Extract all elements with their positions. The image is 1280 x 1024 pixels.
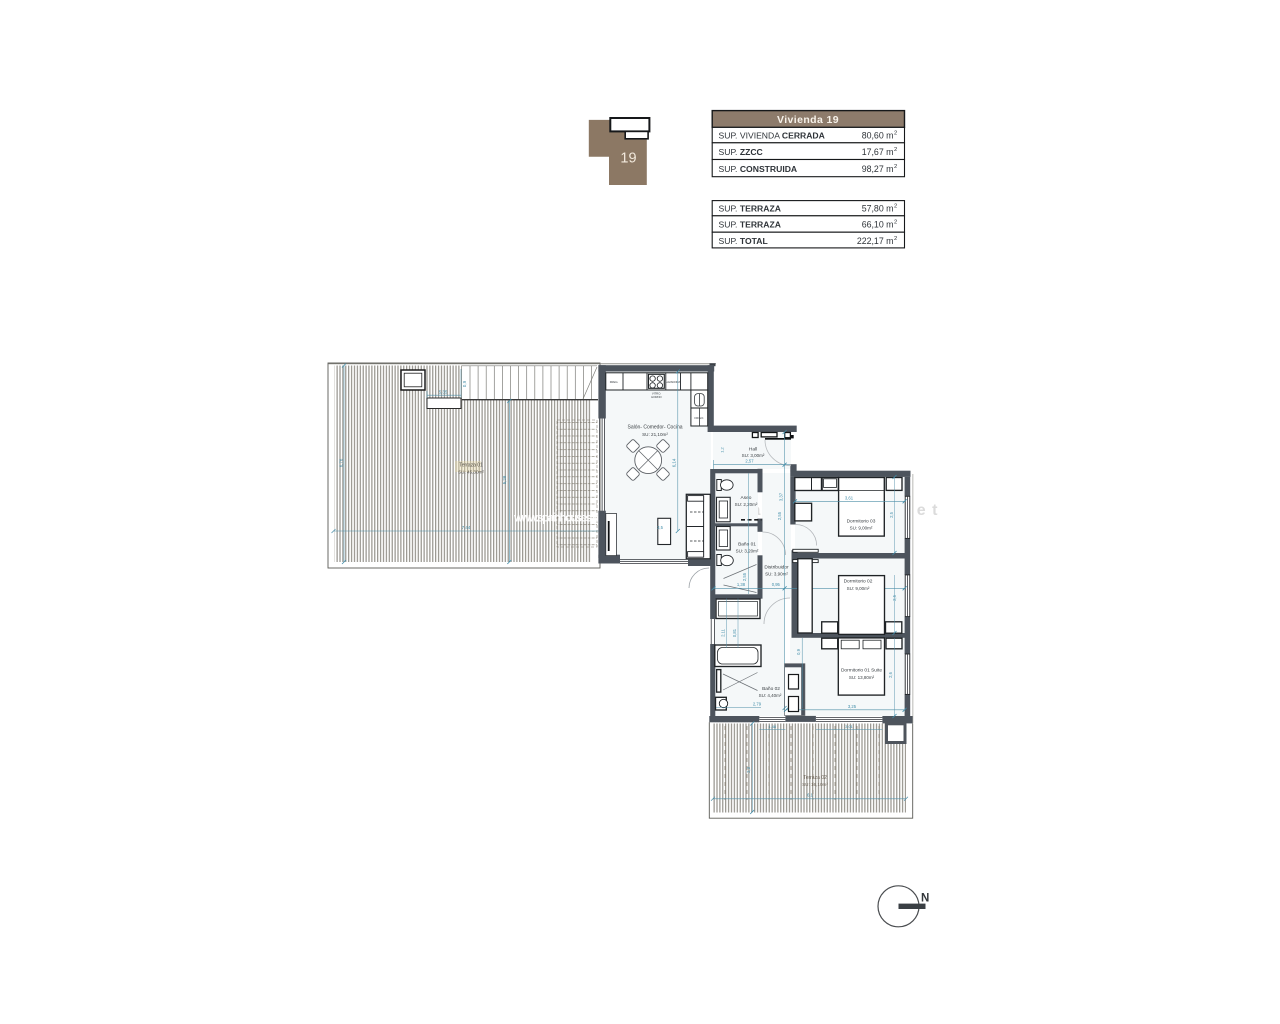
svg-text:7,44: 7,44 (462, 525, 471, 530)
svg-text:Dormitorio 02: Dormitorio 02 (844, 579, 873, 585)
svg-text:2,79: 2,79 (753, 702, 762, 707)
svg-text:3,37: 3,37 (778, 492, 783, 501)
svg-text:Hall: Hall (749, 447, 757, 453)
svg-text:SUP. TERRAZA: SUP. TERRAZA (719, 204, 781, 214)
svg-text:80,60 m: 80,60 m (862, 131, 894, 141)
svg-text:SUP. CONSTRUIDA: SUP. CONSTRUIDA (719, 164, 798, 174)
svg-text:SUP. TOTAL: SUP. TOTAL (719, 236, 768, 246)
svg-text:Baño 01: Baño 01 (738, 542, 756, 548)
svg-text:2: 2 (894, 131, 897, 137)
svg-text:3,61: 3,61 (845, 495, 854, 500)
svg-text:FREG.: FREG. (610, 380, 619, 384)
svg-text:SU: 9,00m²: SU: 9,00m² (847, 586, 870, 591)
svg-text:SU: 4,40m²: SU: 4,40m² (759, 693, 782, 698)
svg-text:1,38: 1,38 (737, 582, 746, 587)
svg-text:Distribuidor: Distribuidor (764, 565, 789, 571)
svg-text:0,9: 0,9 (462, 380, 467, 387)
svg-text:SU: 3,00m²: SU: 3,00m² (742, 453, 765, 458)
svg-text:5,35: 5,35 (439, 389, 448, 394)
svg-text:1,48: 1,48 (769, 724, 777, 729)
svg-text:6,76: 6,76 (339, 458, 344, 467)
svg-text:Salón- Comedor- Cocina: Salón- Comedor- Cocina (627, 425, 682, 431)
svg-text:SUP. VIVIENDA CERRADA: SUP. VIVIENDA CERRADA (719, 131, 825, 141)
svg-text:SU: 3,20m²: SU: 3,20m² (736, 549, 759, 554)
svg-text:2,55: 2,55 (777, 511, 782, 520)
svg-text:Terraza 01: Terraza 01 (459, 463, 483, 469)
svg-text:17,67 m: 17,67 m (862, 147, 894, 157)
svg-text:HORNO: HORNO (651, 395, 662, 399)
svg-text:57,80 m: 57,80 m (862, 204, 894, 214)
svg-text:Baño 02: Baño 02 (762, 686, 780, 692)
svg-text:2: 2 (894, 236, 897, 242)
svg-text:SU: 13,80m²: SU: 13,80m² (849, 675, 875, 680)
svg-text:N: N (921, 893, 929, 905)
svg-text:2,11: 2,11 (720, 628, 725, 637)
svg-text:2: 2 (894, 164, 897, 170)
svg-text:2: 2 (894, 147, 897, 153)
svg-text:2,3: 2,3 (746, 766, 751, 772)
svg-text:3,25: 3,25 (848, 704, 857, 709)
svg-text:LAVADORA: LAVADORA (666, 380, 681, 384)
svg-text:www.spainhouses.net: www.spainhouses.net (513, 513, 606, 525)
svg-text:0,9: 0,9 (796, 648, 801, 654)
svg-text:98,27 m: 98,27 m (862, 164, 894, 174)
svg-text:2: 2 (894, 220, 897, 226)
svg-text:SUP. ZZCC: SUP. ZZCC (719, 147, 763, 157)
svg-text:19: 19 (620, 151, 636, 167)
svg-text:SUP. TERRAZA: SUP. TERRAZA (719, 220, 781, 230)
svg-text:6,14: 6,14 (672, 458, 677, 467)
svg-text:0,95: 0,95 (772, 582, 781, 587)
svg-text:2,55: 2,55 (742, 572, 747, 581)
svg-text:Dormitorio 01 Suite: Dormitorio 01 Suite (841, 668, 882, 674)
svg-text:66,10 m: 66,10 m (862, 220, 894, 230)
svg-text:SU: 16,10m²: SU: 16,10m² (802, 782, 828, 787)
svg-text:0,81: 0,81 (732, 628, 737, 637)
svg-text:2,57: 2,57 (745, 459, 754, 464)
svg-text:6,1: 6,1 (807, 793, 813, 798)
svg-text:2,5: 2,5 (889, 511, 894, 517)
svg-text:5,28: 5,28 (502, 475, 507, 484)
svg-text:Vivienda 19: Vivienda 19 (777, 114, 839, 126)
svg-text:2: 2 (894, 204, 897, 210)
svg-text:SU: 9,00m²: SU: 9,00m² (850, 526, 873, 531)
svg-text:222,17 m: 222,17 m (857, 236, 894, 246)
svg-text:3,5: 3,5 (657, 525, 663, 530)
svg-text:SU: 21,10m²: SU: 21,10m² (642, 432, 668, 437)
svg-text:Terraza 02: Terraza 02 (803, 775, 827, 781)
svg-text:SU: 3,90m²: SU: 3,90m² (765, 572, 788, 577)
svg-text:SU: 45,30m²: SU: 45,30m² (458, 470, 484, 475)
svg-text:3,01: 3,01 (845, 724, 853, 729)
svg-text:Dormitorio 03: Dormitorio 03 (847, 519, 876, 525)
svg-text:2,6: 2,6 (888, 671, 893, 677)
svg-text:1,2: 1,2 (720, 446, 725, 452)
svg-text:SU: 2,20m²: SU: 2,20m² (735, 502, 758, 507)
svg-text:Aseo: Aseo (741, 495, 752, 501)
